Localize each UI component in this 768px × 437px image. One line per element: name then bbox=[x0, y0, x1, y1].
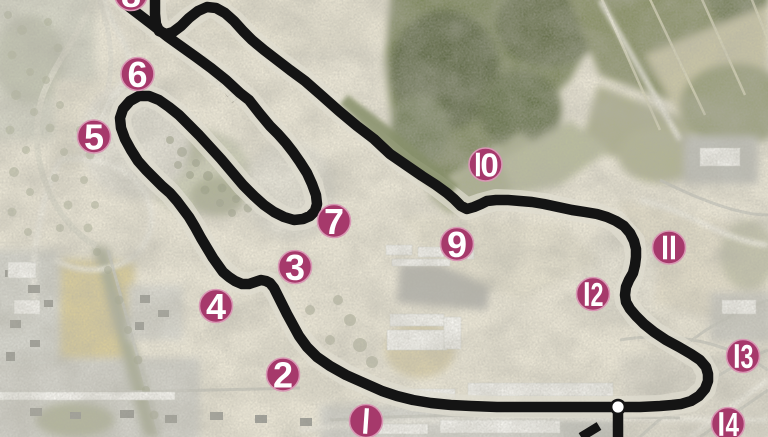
svg-text:4: 4 bbox=[206, 286, 226, 327]
svg-text:3: 3 bbox=[741, 338, 754, 375]
svg-text:7: 7 bbox=[324, 201, 344, 242]
svg-text:4: 4 bbox=[726, 406, 740, 437]
svg-text:2: 2 bbox=[591, 276, 604, 313]
svg-text:5: 5 bbox=[84, 116, 104, 157]
svg-text:3: 3 bbox=[285, 247, 305, 288]
svg-text:8: 8 bbox=[121, 0, 141, 15]
svg-text:2: 2 bbox=[273, 354, 293, 395]
svg-text:0: 0 bbox=[480, 146, 498, 183]
svg-text:9: 9 bbox=[447, 224, 467, 265]
svg-text:6: 6 bbox=[127, 54, 147, 95]
